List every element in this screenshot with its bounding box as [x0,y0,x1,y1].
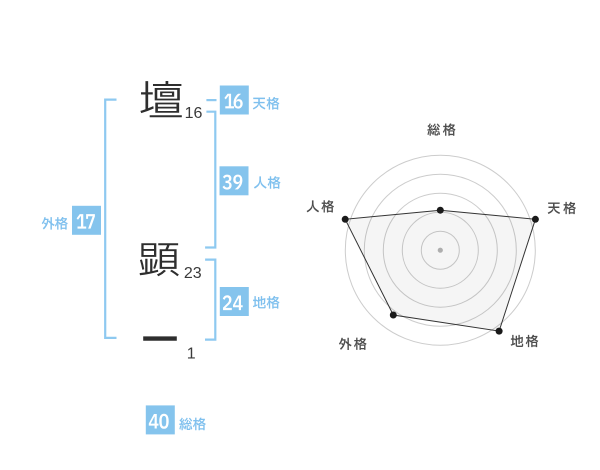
svg-text:1: 1 [187,346,196,363]
svg-text:23: 23 [184,265,202,282]
svg-text:16: 16 [185,105,203,122]
